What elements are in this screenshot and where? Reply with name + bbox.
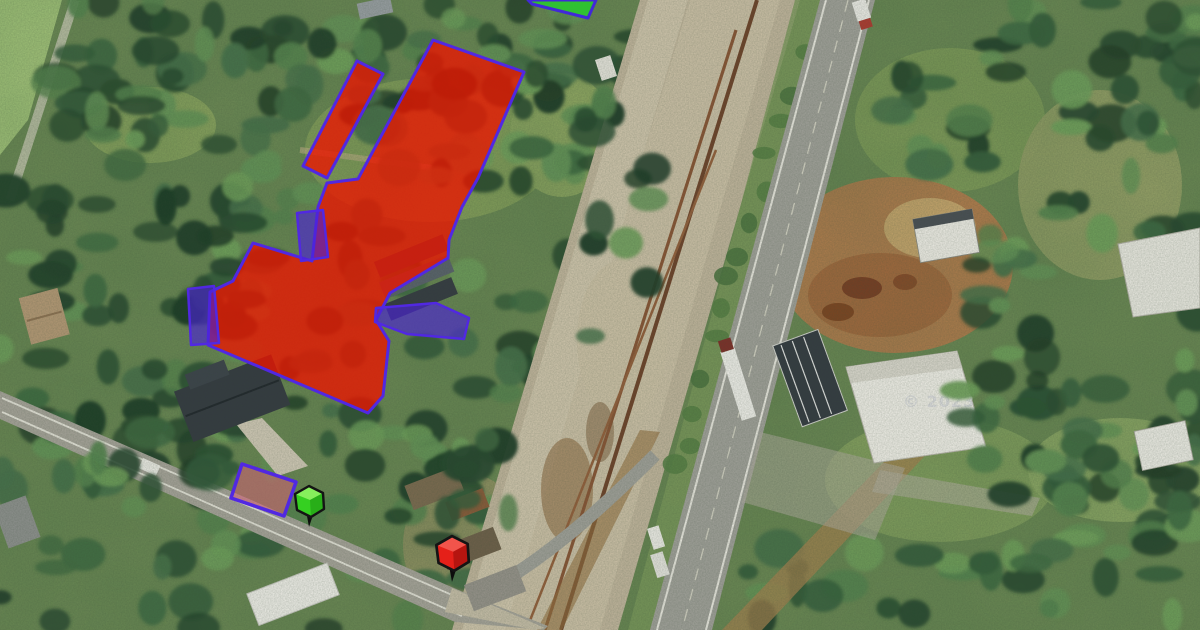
parcel-green-top[interactable]	[528, 0, 596, 18]
parcel-purple-right[interactable]	[375, 303, 469, 339]
parcel-overlay-layer	[0, 0, 1200, 630]
map-pin-red[interactable]	[436, 536, 468, 582]
map-pin-green[interactable]	[295, 486, 324, 527]
parcel-pink[interactable]	[231, 464, 296, 516]
parcel-purple-left[interactable]	[188, 286, 219, 345]
satellite-map[interactable]: © 2023	[0, 0, 1200, 630]
parcel-purple-small[interactable]	[297, 210, 328, 261]
